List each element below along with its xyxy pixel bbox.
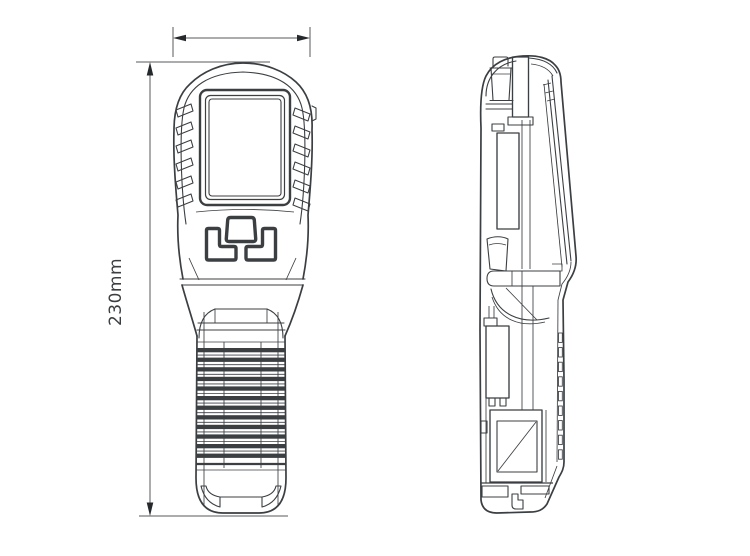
front-side-slots-left xyxy=(176,104,193,207)
front-handle-base xyxy=(201,486,281,507)
height-dimension-label: 230mm xyxy=(106,258,126,326)
nav-up-button xyxy=(226,218,255,242)
width-dimension xyxy=(173,27,310,57)
front-nav-buttons xyxy=(207,218,276,261)
front-screen xyxy=(200,90,290,205)
side-pcb xyxy=(497,133,519,229)
side-battery-rail xyxy=(481,306,509,483)
front-grip-ribs xyxy=(196,348,286,470)
front-view-drawing xyxy=(174,63,316,513)
side-base xyxy=(481,483,553,509)
side-battery-box xyxy=(490,410,546,482)
front-side-slots-right xyxy=(293,108,310,211)
side-grip-notches xyxy=(545,300,562,498)
device-drawing: 230mm xyxy=(0,0,750,556)
technical-drawing-canvas: 230mm xyxy=(0,0,750,556)
side-lens-barrel xyxy=(487,237,562,410)
side-internal-optics xyxy=(486,57,571,300)
side-view-drawing xyxy=(480,56,576,513)
